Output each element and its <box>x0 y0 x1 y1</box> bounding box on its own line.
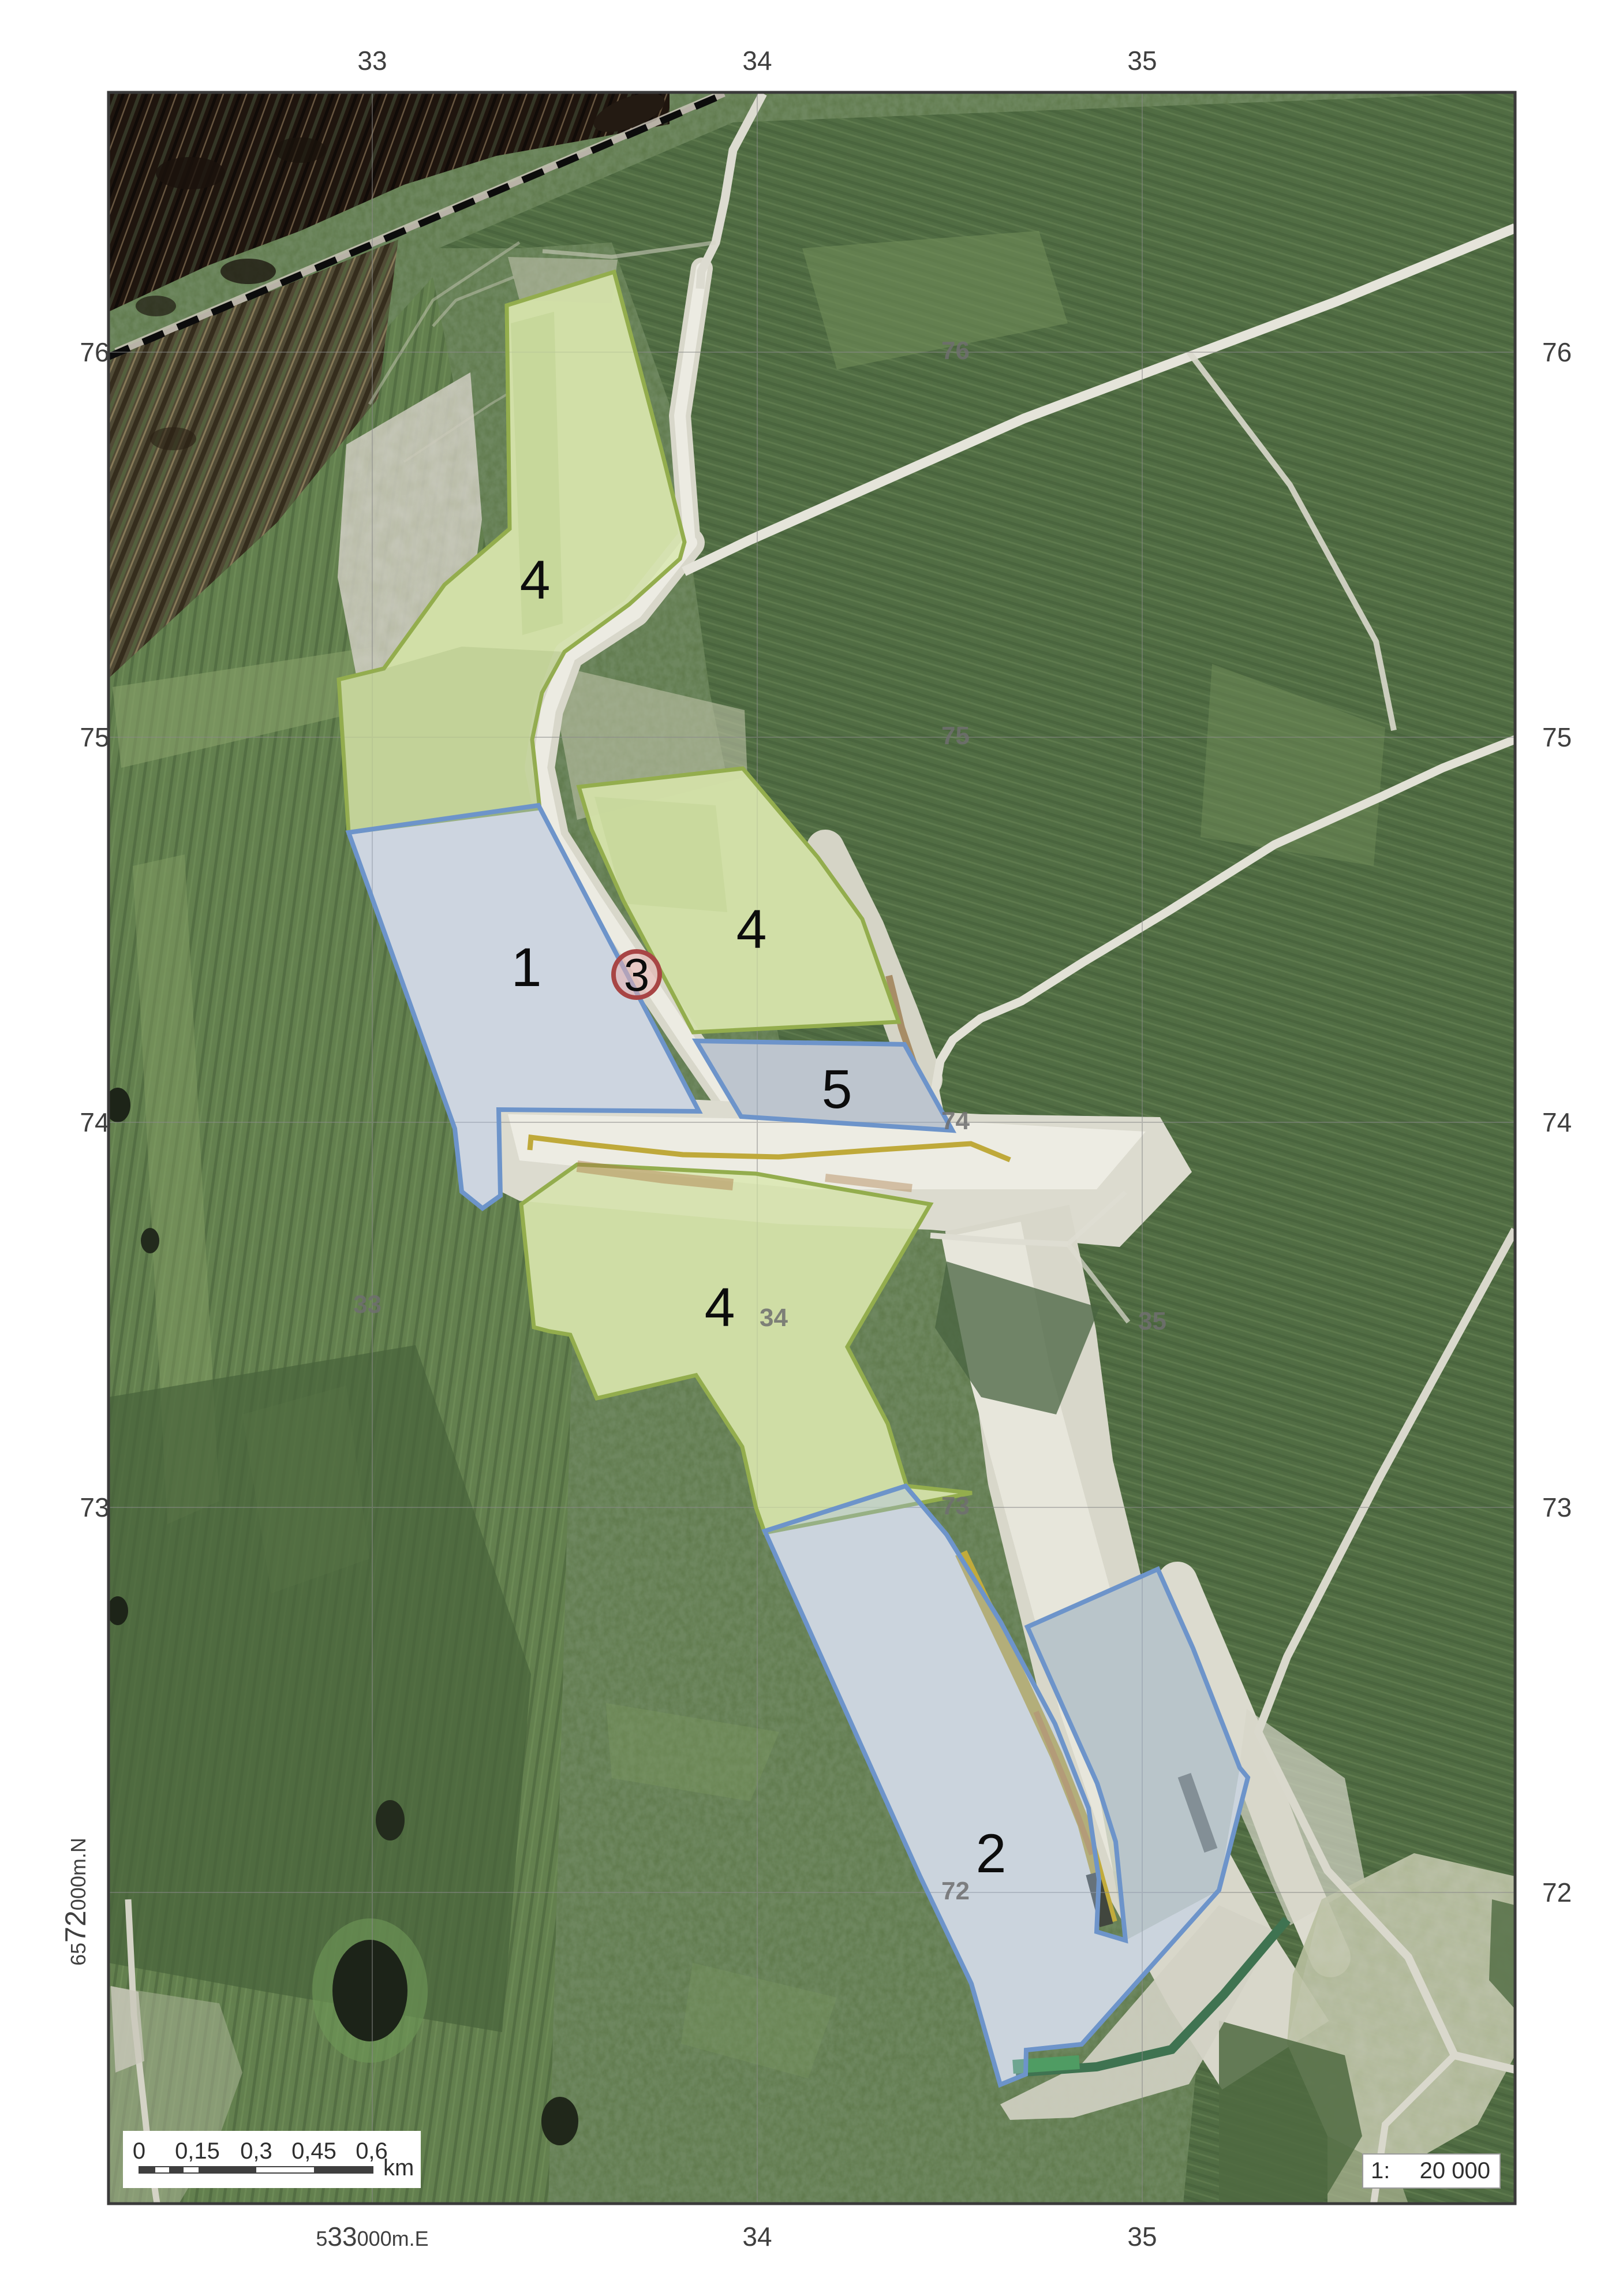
svg-text:33: 33 <box>357 46 387 76</box>
svg-text:35: 35 <box>1138 1307 1166 1335</box>
svg-text:72: 72 <box>941 1877 970 1905</box>
svg-text:4: 4 <box>705 1277 735 1338</box>
svg-text:4: 4 <box>736 899 767 960</box>
svg-text:74: 74 <box>1542 1107 1572 1137</box>
svg-text:20 000: 20 000 <box>1420 2158 1490 2183</box>
svg-text:34: 34 <box>742 46 772 76</box>
svg-text:3: 3 <box>624 949 650 1000</box>
svg-text:0: 0 <box>133 2138 145 2164</box>
svg-text:73: 73 <box>1542 1492 1572 1522</box>
svg-text:75: 75 <box>80 722 109 752</box>
svg-text:0,3: 0,3 <box>240 2138 272 2164</box>
svg-text:76: 76 <box>941 337 970 365</box>
svg-text:km: km <box>383 2155 414 2181</box>
svg-text:1: 1 <box>511 937 542 998</box>
svg-text:34: 34 <box>760 1304 788 1332</box>
svg-text:74: 74 <box>941 1107 970 1135</box>
svg-text:35: 35 <box>1127 2222 1157 2252</box>
svg-text:1:: 1: <box>1371 2158 1390 2183</box>
svg-text:35: 35 <box>1127 46 1157 76</box>
svg-text:72: 72 <box>1542 1877 1572 1907</box>
svg-text:33: 33 <box>353 1290 382 1319</box>
svg-text:5: 5 <box>822 1059 852 1120</box>
svg-text:75: 75 <box>941 722 970 750</box>
svg-text:73: 73 <box>80 1492 109 1522</box>
svg-text:76: 76 <box>1542 337 1572 367</box>
svg-text:2: 2 <box>976 1823 1007 1884</box>
svg-text:76: 76 <box>80 337 109 367</box>
svg-text:34: 34 <box>742 2222 772 2252</box>
svg-text:4: 4 <box>520 550 551 611</box>
svg-text:0,45: 0,45 <box>291 2138 336 2164</box>
svg-text:0,15: 0,15 <box>175 2138 220 2164</box>
svg-text:74: 74 <box>80 1107 109 1137</box>
svg-text:75: 75 <box>1542 722 1572 752</box>
svg-text:73: 73 <box>941 1492 970 1520</box>
